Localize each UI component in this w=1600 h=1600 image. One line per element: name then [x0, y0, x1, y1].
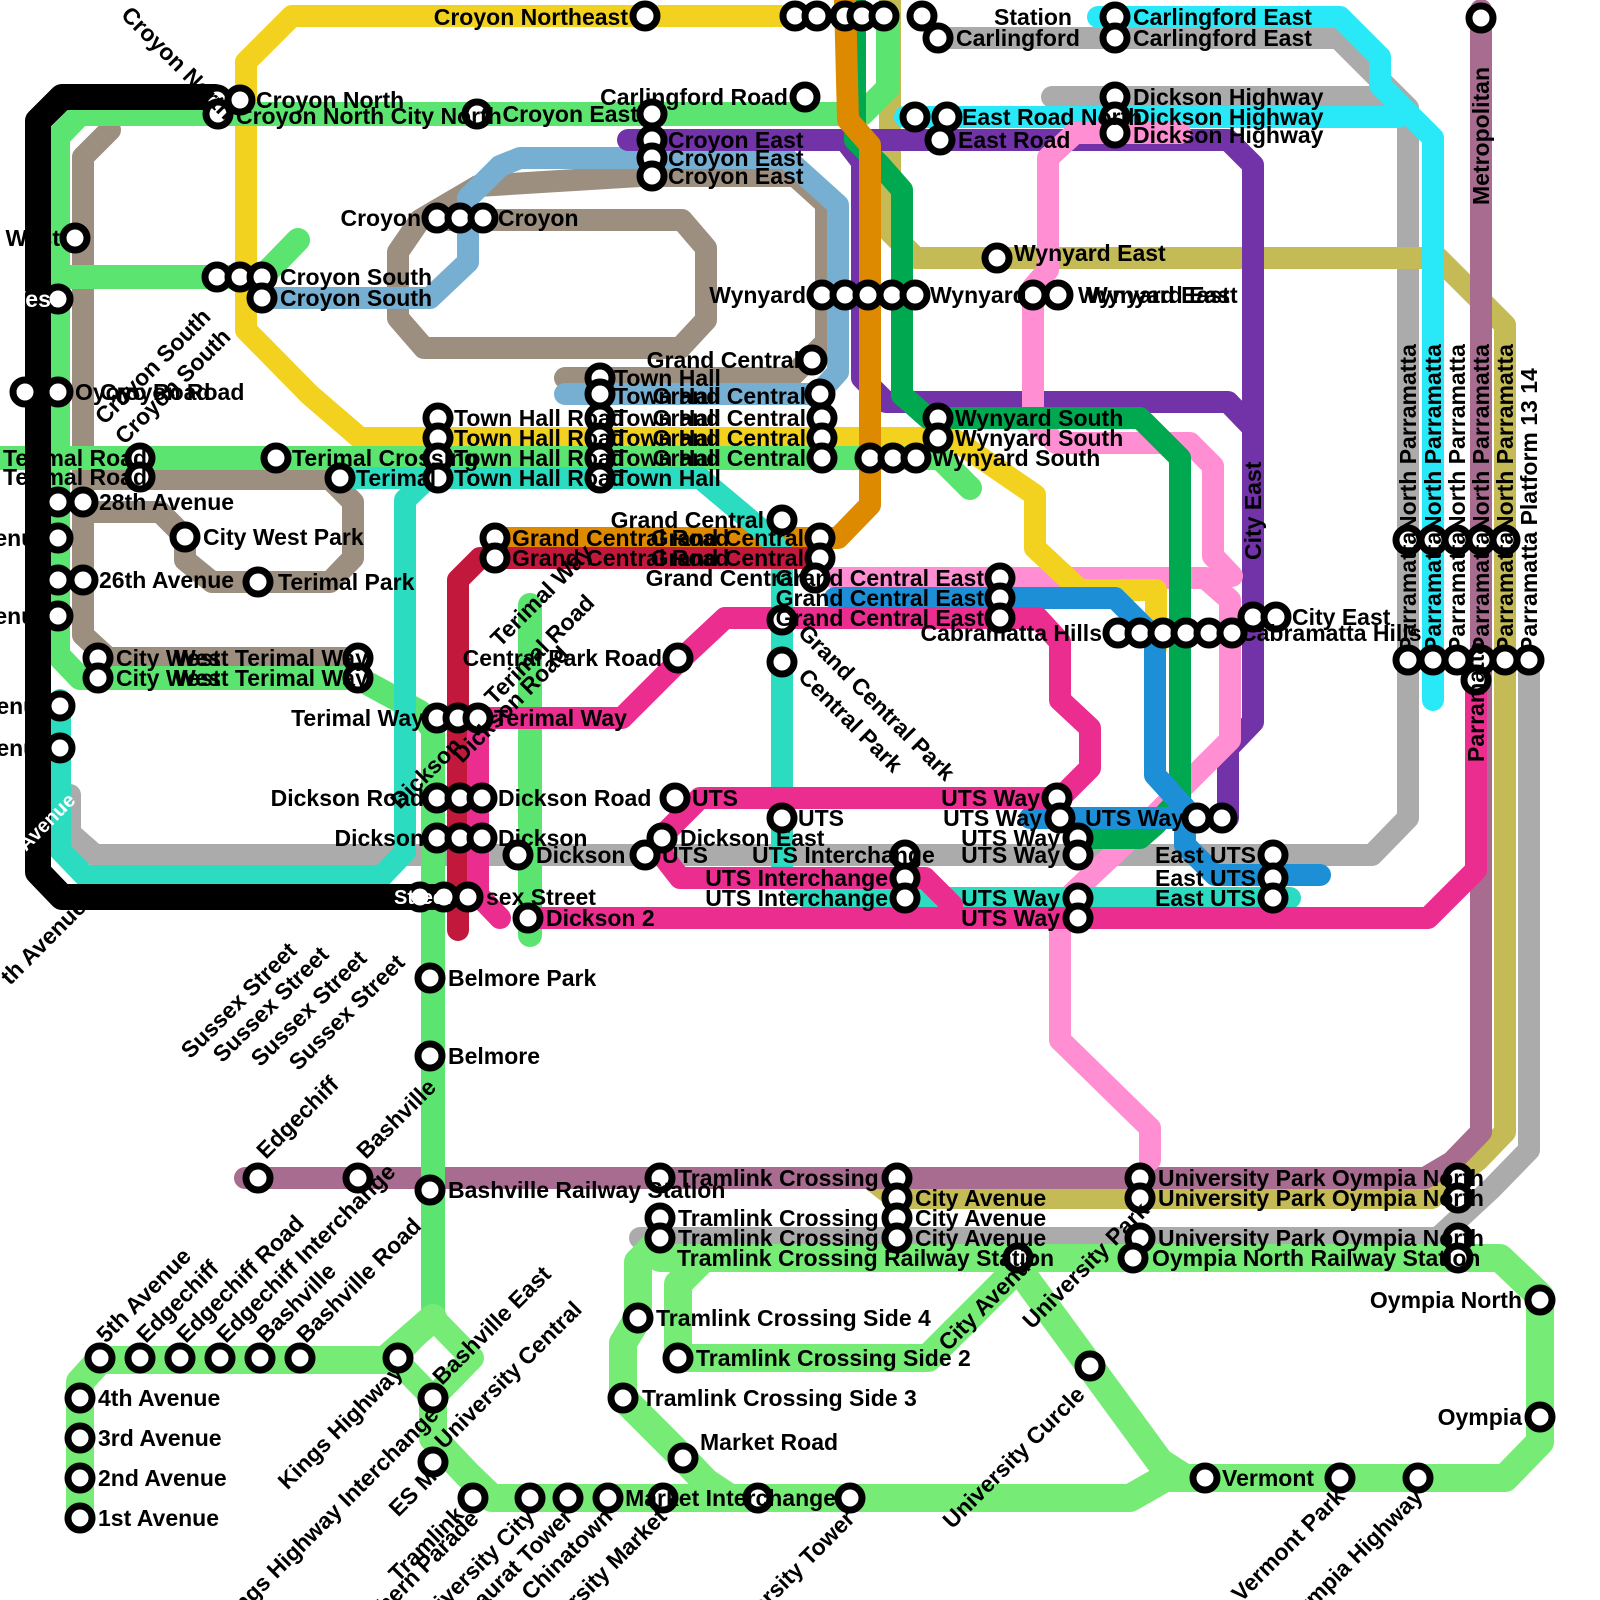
station-label: Dickson Road	[271, 785, 424, 811]
station-label: Vermont	[1222, 1465, 1314, 1491]
station-label: North Parramatta	[1444, 344, 1470, 532]
station-marker[interactable]	[910, 4, 934, 28]
station-label: Croyon	[498, 205, 579, 231]
station-label: Terimal Way	[291, 705, 424, 731]
station-marker[interactable]	[800, 348, 824, 372]
station-marker[interactable]	[648, 1226, 672, 1250]
station-marker[interactable]	[250, 286, 274, 310]
station-marker[interactable]	[48, 694, 72, 718]
station-marker[interactable]	[46, 568, 70, 592]
station-marker[interactable]	[13, 380, 37, 404]
station-marker[interactable]	[671, 1446, 695, 1470]
station-marker[interactable]	[928, 128, 952, 152]
station-marker[interactable]	[68, 1506, 92, 1530]
station-label: Metropolitan	[1468, 67, 1494, 205]
station-label: Market Road	[700, 1429, 838, 1455]
station-marker[interactable]	[418, 966, 442, 990]
line-lightpink-loop	[1033, 133, 1232, 576]
station-label: Belmore	[448, 1043, 540, 1069]
station-label: Wynyard East	[1086, 282, 1238, 308]
station-label: 26th Avenue	[99, 567, 234, 593]
station-label: Oympia North Railway Station	[1152, 1245, 1480, 1271]
station-marker[interactable]	[1261, 886, 1285, 910]
station-label: Street	[394, 887, 451, 909]
station-label: Parramatta Platform 13 14	[1516, 368, 1542, 652]
station-label: enue	[0, 525, 48, 551]
station-marker[interactable]	[666, 1346, 690, 1370]
station-marker[interactable]	[128, 1346, 152, 1370]
station-label: UTS Interchange	[705, 885, 888, 911]
station-marker[interactable]	[456, 885, 480, 909]
station-marker[interactable]	[872, 4, 896, 28]
station-marker[interactable]	[1193, 1466, 1217, 1490]
station-marker[interactable]	[68, 1466, 92, 1490]
station-label: th Avenue	[0, 894, 91, 990]
station-marker[interactable]	[808, 382, 832, 406]
station-marker[interactable]	[71, 490, 95, 514]
station-label: Carlingford	[956, 25, 1080, 51]
station-label: UTS Way	[961, 842, 1060, 868]
station-label: Oympia North	[1370, 1287, 1522, 1313]
station-label: 2nd Avenue	[98, 1465, 227, 1491]
station-marker[interactable]	[985, 246, 1009, 270]
station-marker[interactable]	[903, 283, 927, 307]
station-marker[interactable]	[208, 1346, 232, 1370]
station-marker[interactable]	[1469, 6, 1493, 30]
station-label: Terimal	[356, 465, 436, 491]
station-label: East UTS	[1155, 885, 1256, 911]
station-label: enue	[0, 735, 50, 761]
station-label: Dickson Road	[498, 785, 651, 811]
station-label: UTS Way	[961, 905, 1060, 931]
station-marker[interactable]	[48, 736, 72, 760]
station-label: Parramatta	[1463, 642, 1489, 762]
station-label: Wynyard South	[932, 445, 1100, 471]
station-marker[interactable]	[1210, 806, 1234, 830]
station-marker[interactable]	[640, 164, 664, 188]
station-label: 4th Avenue	[98, 1385, 220, 1411]
station-label: Croyon North City North	[236, 103, 502, 129]
station-marker[interactable]	[483, 546, 507, 570]
station-marker[interactable]	[904, 446, 928, 470]
station-label: 28th Avenue	[99, 489, 234, 515]
station-marker[interactable]	[246, 1166, 270, 1190]
station-label: Dickson	[335, 825, 424, 851]
station-label: Tramlink Crossing Railway Station	[677, 1245, 1054, 1271]
station-label: Dickson East	[680, 825, 825, 851]
station-marker[interactable]	[1066, 843, 1090, 867]
station-label: North Parramatta	[1395, 344, 1421, 532]
station-label: City East	[1240, 461, 1266, 560]
station-label: Croyon Road	[100, 379, 244, 405]
station-marker[interactable]	[248, 1346, 272, 1370]
station-marker[interactable]	[793, 85, 817, 109]
station-marker[interactable]	[926, 26, 950, 50]
station-label: Tramlink Crossing Side 3	[642, 1385, 917, 1411]
station-label: Town Hall	[614, 465, 721, 491]
station-marker[interactable]	[471, 206, 495, 230]
station-label: Tramlink Crossing	[678, 1165, 879, 1191]
station-marker[interactable]	[1046, 283, 1070, 307]
station-marker[interactable]	[46, 604, 70, 628]
station-label: Parramatta	[1444, 532, 1470, 652]
station-marker[interactable]	[68, 1386, 92, 1410]
station-label: Tramlink Crossing Side 2	[696, 1345, 971, 1371]
station-marker[interactable]	[1121, 1246, 1145, 1270]
station-label: Parramatta	[1468, 532, 1494, 652]
station-marker[interactable]	[46, 380, 70, 404]
station-marker[interactable]	[1528, 1405, 1552, 1429]
station-label: Cabramatta Hills	[920, 620, 1102, 646]
station-label: Dickson	[536, 842, 625, 868]
station-label: Dickson 2	[546, 905, 655, 931]
station-marker[interactable]	[470, 786, 494, 810]
station-label: 3rd Avenue	[98, 1425, 222, 1451]
station-label: North Parramatta	[1468, 344, 1494, 532]
station-marker[interactable]	[264, 446, 288, 470]
station-marker[interactable]	[770, 650, 794, 674]
station-marker[interactable]	[246, 570, 270, 594]
station-marker[interactable]	[903, 105, 927, 129]
station-label: Edgechiff	[251, 1071, 344, 1164]
station-label: UTS Way	[1085, 805, 1184, 831]
station-label: Carlingford East	[1133, 25, 1312, 51]
station-marker[interactable]	[611, 1386, 635, 1410]
station-label: Tramlink Crossing Side 4	[656, 1305, 931, 1331]
station-label: Parramatta	[1395, 532, 1421, 652]
station-label: Terimal Road	[3, 464, 147, 490]
station-marker[interactable]	[1103, 26, 1127, 50]
station-marker[interactable]	[68, 1426, 92, 1450]
station-marker[interactable]	[86, 666, 110, 690]
station-label: UTS	[692, 785, 738, 811]
map-canvas: Croyon NorthCroyon NorthCroyon North Cit…	[0, 0, 1600, 1600]
station-label: Carlingford Road	[600, 84, 788, 110]
transit-map: Croyon NorthCroyon NorthCroyon North Cit…	[0, 0, 1600, 1600]
station-label: Oympia	[1438, 1404, 1523, 1430]
station-marker[interactable]	[71, 568, 95, 592]
station-label: City East	[1292, 604, 1391, 630]
station-marker[interactable]	[1078, 1354, 1102, 1378]
station-label: West	[4, 286, 59, 312]
station-marker[interactable]	[856, 283, 880, 307]
station-marker[interactable]	[168, 1346, 192, 1370]
station-marker[interactable]	[418, 1178, 442, 1202]
station-label: n West	[0, 225, 60, 251]
station-label: enue	[0, 603, 48, 629]
station-label: Wynyard	[930, 282, 1027, 308]
station-marker[interactable]	[663, 786, 687, 810]
station-marker[interactable]	[288, 1346, 312, 1370]
station-marker[interactable]	[88, 1346, 112, 1370]
station-marker[interactable]	[805, 4, 829, 28]
station-label: enue	[0, 693, 50, 719]
station-label: East Road	[958, 127, 1070, 153]
station-marker[interactable]	[588, 382, 612, 406]
station-label: Croyon Northeast	[434, 4, 629, 30]
station-marker[interactable]	[666, 646, 690, 670]
station-label: Market Interchange	[625, 1485, 836, 1511]
station-label: North Parramatta	[1492, 344, 1518, 532]
station-label: Croyon East	[668, 163, 804, 189]
station-label: North Parramatta	[1420, 344, 1446, 532]
station-marker[interactable]	[1528, 1288, 1552, 1312]
station-label: City West Park	[203, 524, 364, 550]
station-label: Belmore Park	[448, 965, 597, 991]
station-marker[interactable]	[63, 226, 87, 250]
station-marker[interactable]	[1185, 806, 1209, 830]
station-label: Croyon South	[280, 285, 432, 311]
station-marker[interactable]	[893, 886, 917, 910]
station-label: Dickson Highway	[1133, 122, 1324, 148]
station-label: Terimal Park	[278, 569, 415, 595]
station-marker[interactable]	[626, 1306, 650, 1330]
station-label: West Terimal Way	[174, 665, 368, 691]
station-label: Croyon	[341, 205, 422, 231]
station-marker[interactable]	[470, 826, 494, 850]
station-marker[interactable]	[418, 1044, 442, 1068]
station-label: 1st Avenue	[98, 1505, 219, 1531]
station-label: University Tower	[711, 1505, 859, 1600]
station-label: Wynyard	[709, 282, 806, 308]
station-marker[interactable]	[46, 490, 70, 514]
station-marker[interactable]	[1066, 906, 1090, 930]
station-label: Wynyard East	[1014, 240, 1166, 266]
station-label: Town Hall Road	[454, 465, 625, 491]
station-marker[interactable]	[633, 4, 657, 28]
station-label: Parramatta	[1420, 532, 1446, 652]
station-marker[interactable]	[46, 526, 70, 550]
station-label: University Park Oympia North	[1158, 1185, 1484, 1211]
station-label: Parramatta	[1492, 532, 1518, 652]
station-marker[interactable]	[810, 446, 834, 470]
station-marker[interactable]	[173, 525, 197, 549]
